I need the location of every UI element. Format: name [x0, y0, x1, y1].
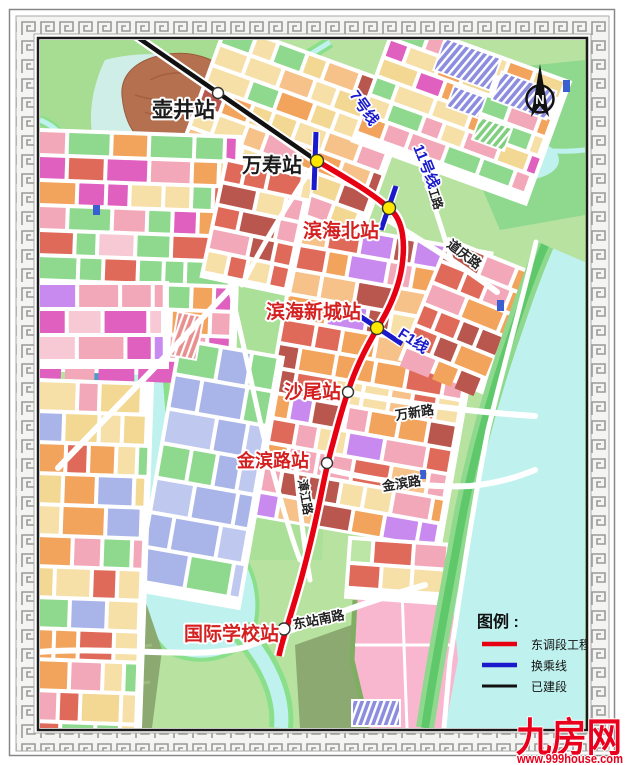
legend-label-transfer: 换乘线 [531, 659, 567, 673]
map-content: 道庆路 滨江路 万新路 金滨路 漳江路 东站南路 7号线 11号线 F1线 壶井… [21, 17, 591, 754]
station-label-hujing: 壶井站 [152, 98, 215, 122]
station-marker-shawei [343, 387, 354, 398]
station-label-binhaixincheng: 滨海新城站 [266, 300, 361, 323]
station-label-jinbinlu: 金滨路站 [236, 450, 309, 471]
station-marker-jinbinlu [322, 458, 333, 469]
station-marker-binhaibei [383, 202, 396, 215]
metro-planning-map: 道庆路 滨江路 万新路 金滨路 漳江路 东站南路 7号线 11号线 F1线 壶井… [0, 0, 625, 765]
map-canvas: 道庆路 滨江路 万新路 金滨路 漳江路 东站南路 7号线 11号线 F1线 壶井… [0, 0, 625, 765]
station-marker-binhaixincheng [371, 322, 384, 335]
legend-label-built: 已建段 [531, 679, 567, 694]
watermark-url: www.999house.com [516, 751, 623, 765]
legend-title: 图例 : [477, 612, 519, 631]
station-marker-wanshou [311, 155, 324, 168]
station-marker-hujing [213, 88, 224, 99]
station-marker-guojixuexiao [278, 623, 290, 635]
station-label-shawei: 沙尾站 [284, 380, 341, 403]
compass-north-label: N [535, 92, 544, 107]
station-label-wanshou: 万寿站 [241, 153, 302, 177]
legend-label-east-extension: 东调段工程 [531, 637, 591, 652]
station-label-guojixuexiao: 国际学校站 [184, 622, 279, 645]
station-label-binhaibei: 滨海北站 [303, 219, 379, 242]
watermark: 九房网 www.999house.com [516, 716, 623, 765]
